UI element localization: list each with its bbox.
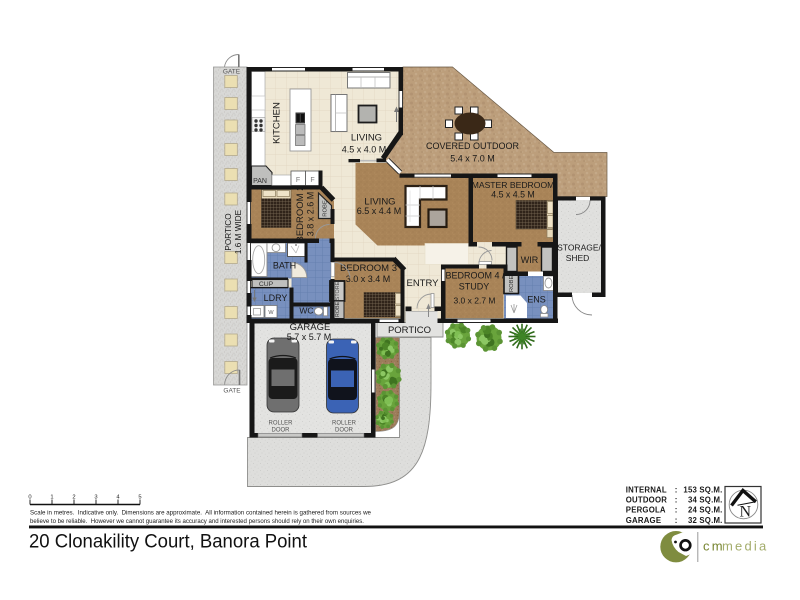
svg-text:GATE: GATE — [223, 69, 241, 76]
svg-text:STORAGE/: STORAGE/ — [557, 243, 601, 253]
svg-text:LDRY: LDRY — [264, 293, 288, 303]
svg-text:media: media — [722, 539, 768, 554]
svg-text:SHED: SHED — [566, 253, 590, 263]
svg-text:LIVING: LIVING — [351, 133, 382, 144]
svg-text:F: F — [310, 177, 314, 184]
svg-text:3: 3 — [94, 495, 97, 501]
svg-text::: : — [675, 496, 678, 505]
svg-text:ROBE: ROBE — [335, 301, 341, 317]
svg-text:2: 2 — [72, 495, 75, 501]
svg-text:KITCHEN: KITCHEN — [271, 102, 282, 144]
svg-text:4.5 x 4.5 M: 4.5 x 4.5 M — [491, 190, 535, 200]
svg-text:DOOR: DOOR — [272, 428, 291, 434]
svg-text:BATH: BATH — [273, 261, 296, 271]
svg-text:5: 5 — [138, 495, 141, 501]
svg-text:Scale in metres. Indicative o: Scale in metres. Indicative only. Dimens… — [30, 510, 372, 517]
svg-text:BEDROOM 2: BEDROOM 2 — [295, 185, 306, 242]
svg-text:ROBE: ROBE — [323, 200, 329, 217]
svg-text:STUDY: STUDY — [459, 282, 490, 292]
svg-text:GATE: GATE — [223, 388, 241, 395]
svg-text:24 SQ.M.: 24 SQ.M. — [688, 506, 723, 515]
svg-text:PERGOLA: PERGOLA — [626, 506, 666, 515]
svg-text:WIR: WIR — [521, 255, 539, 265]
svg-text:4.5 x 4.0 M: 4.5 x 4.0 M — [342, 145, 387, 155]
svg-text:OUTDOOR: OUTDOOR — [626, 496, 667, 505]
svg-text:N: N — [740, 504, 752, 521]
svg-text:PORTICO: PORTICO — [388, 325, 431, 336]
svg-text:believe to be reliable. Howev: believe to be reliable. However we canno… — [30, 518, 364, 525]
svg-text::: : — [675, 485, 678, 494]
svg-text:3.0 x 3.4 M: 3.0 x 3.4 M — [346, 274, 391, 284]
svg-text:0: 0 — [28, 495, 31, 501]
svg-text:34 SQ.M.: 34 SQ.M. — [688, 496, 723, 505]
svg-text:CUP: CUP — [259, 281, 274, 288]
svg-text:WC: WC — [299, 306, 313, 316]
svg-text:5.7 x 5.7 M: 5.7 x 5.7 M — [287, 332, 332, 342]
svg-text:ENTRY: ENTRY — [406, 278, 439, 289]
svg-text:4: 4 — [116, 495, 120, 501]
svg-text:W: W — [268, 310, 274, 316]
svg-text:BEDROOM 4 /: BEDROOM 4 / — [445, 271, 505, 281]
svg-text:1.6 M WIDE: 1.6 M WIDE — [234, 209, 243, 254]
svg-text:ROLLER: ROLLER — [268, 421, 293, 427]
svg-text:3.8 x 2.6 M: 3.8 x 2.6 M — [306, 192, 316, 237]
svg-text:F: F — [296, 177, 300, 184]
svg-text:3.0 x 2.7 M: 3.0 x 2.7 M — [453, 296, 495, 306]
svg-text:ENS: ENS — [527, 295, 546, 305]
svg-text:GARAGE: GARAGE — [626, 516, 661, 525]
svg-text:ROLLER: ROLLER — [332, 421, 357, 427]
svg-text::: : — [675, 516, 678, 525]
svg-text:32 SQ.M.: 32 SQ.M. — [688, 516, 723, 525]
svg-text::: : — [675, 506, 678, 515]
svg-text:DOOR: DOOR — [335, 428, 354, 434]
svg-text:INTERNAL: INTERNAL — [626, 485, 667, 494]
svg-text:MASTER BEDROOM: MASTER BEDROOM — [472, 180, 555, 190]
svg-text:153 SQ.M.: 153 SQ.M. — [683, 485, 722, 494]
svg-text:ROBE: ROBE — [509, 275, 515, 292]
svg-text:6.5 x 4.4 M: 6.5 x 4.4 M — [357, 206, 402, 216]
svg-text:5.4 x 7.0 M: 5.4 x 7.0 M — [450, 154, 495, 164]
svg-text:COVERED OUTDOOR: COVERED OUTDOOR — [426, 141, 520, 151]
svg-text:1: 1 — [50, 495, 53, 501]
svg-text:STORE: STORE — [335, 281, 341, 300]
svg-text:PORTICO: PORTICO — [224, 213, 233, 250]
svg-text:20 Clonakility Court, Banora P: 20 Clonakility Court, Banora Point — [29, 532, 308, 553]
svg-text:PAN: PAN — [253, 178, 267, 185]
